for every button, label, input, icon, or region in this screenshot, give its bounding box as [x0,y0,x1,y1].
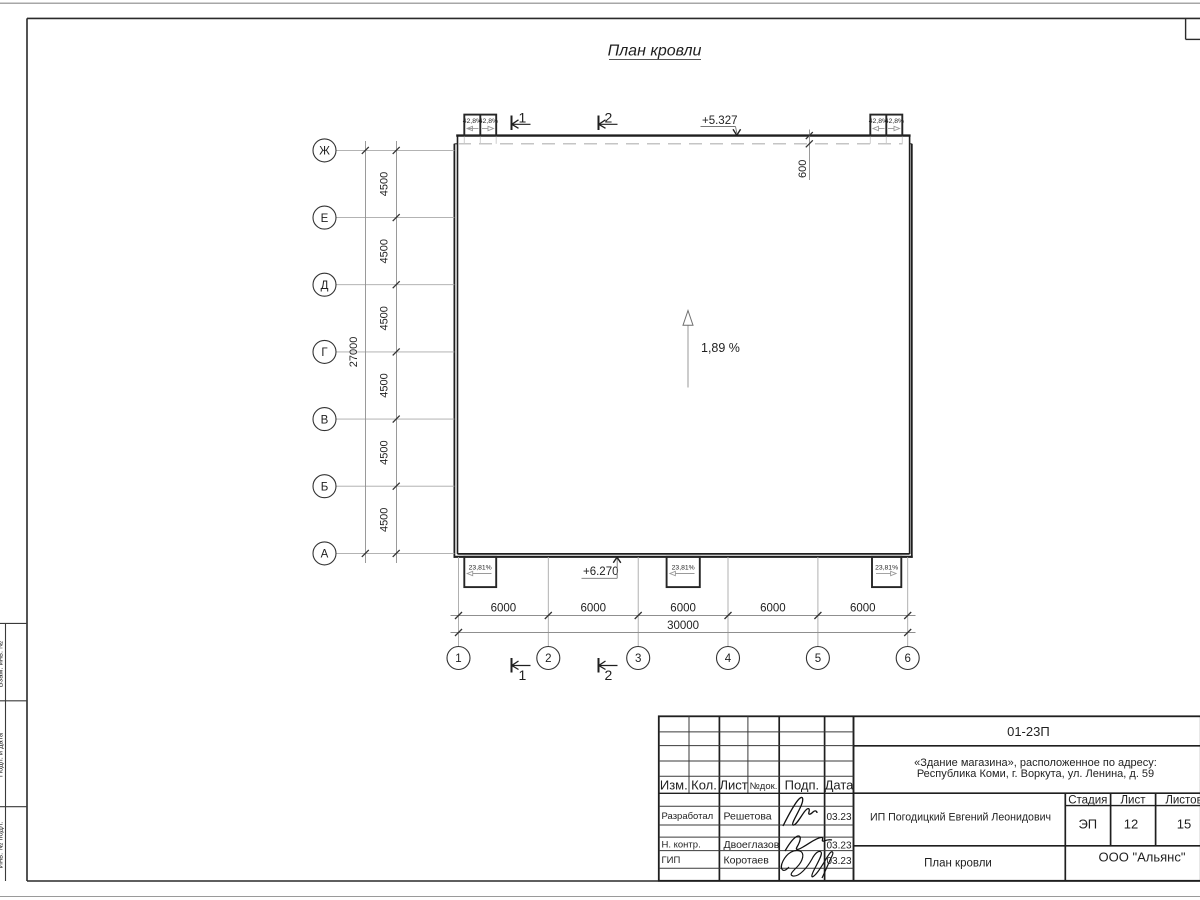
svg-text:Подп. и дата: Подп. и дата [0,732,5,777]
svg-text:Стадия: Стадия [1068,794,1107,806]
svg-text:Инв. № подл.: Инв. № подл. [0,822,5,869]
svg-text:23,81%: 23,81% [875,565,898,572]
svg-text:Д: Д [321,280,329,292]
svg-text:6000: 6000 [670,603,696,615]
svg-text:6000: 6000 [491,603,517,615]
svg-text:Е: Е [321,213,329,225]
svg-text:42,8%: 42,8% [885,118,904,125]
svg-text:№док.: №док. [750,781,778,792]
svg-text:Ж: Ж [319,146,330,158]
svg-text:+5.327: +5.327 [702,115,738,127]
svg-text:ООО "Альянс": ООО "Альянс" [1099,850,1186,865]
svg-text:03.23: 03.23 [826,856,851,867]
svg-text:Разработал: Разработал [662,811,714,822]
svg-text:Решетова: Решетова [724,811,772,823]
svg-text:4500: 4500 [379,239,391,263]
svg-text:1: 1 [519,667,527,683]
svg-text:42,8%: 42,8% [479,118,498,125]
svg-text:«Здание магазина», расположенн: «Здание магазина», расположенное по адре… [914,757,1157,769]
svg-text:Взам. инв. №: Взам. инв. № [0,641,5,687]
svg-text:600: 600 [797,160,809,178]
svg-text:23,81%: 23,81% [672,565,695,572]
svg-text:4500: 4500 [379,508,391,532]
svg-text:План кровли: План кровли [608,43,702,60]
svg-text:Г: Г [321,347,328,359]
svg-text:03.23: 03.23 [826,840,851,851]
svg-text:Двоеглазов: Двоеглазов [724,839,780,851]
svg-text:1: 1 [455,653,461,665]
svg-text:03.23: 03.23 [826,812,851,823]
svg-text:Листов: Листов [1165,794,1200,806]
svg-text:План кровли: План кровли [924,858,992,870]
svg-text:6000: 6000 [581,603,607,615]
svg-text:Лист: Лист [719,777,747,792]
svg-text:Республика Коми, г. Воркута, у: Республика Коми, г. Воркута, ул. Ленина,… [917,768,1154,780]
svg-text:30000: 30000 [667,620,699,632]
svg-text:6: 6 [904,653,910,665]
svg-text:+6.270: +6.270 [583,566,619,578]
svg-text:Подп.: Подп. [785,777,820,792]
svg-text:Коротаев: Коротаев [724,854,770,866]
svg-text:4500: 4500 [379,440,391,464]
svg-text:1: 1 [519,110,527,126]
svg-text:Дата: Дата [825,777,855,792]
svg-text:2: 2 [545,653,551,665]
svg-text:01-23П: 01-23П [1007,724,1050,739]
svg-text:4500: 4500 [379,306,391,330]
svg-text:Лист: Лист [1121,794,1147,806]
svg-text:ИП Погодицкий Евгений Леонидов: ИП Погодицкий Евгений Леонидович [870,811,1051,823]
svg-text:2: 2 [605,110,613,126]
svg-text:ЭП: ЭП [1078,817,1097,832]
svg-text:4500: 4500 [379,172,391,196]
svg-text:3: 3 [635,653,641,665]
svg-text:6000: 6000 [850,603,876,615]
svg-text:15: 15 [1177,817,1191,832]
svg-text:Изм.: Изм. [660,777,688,792]
svg-text:Б: Б [321,481,329,493]
svg-text:23,81%: 23,81% [469,565,492,572]
svg-text:12: 12 [1124,817,1138,832]
svg-text:Кол.: Кол. [691,777,717,792]
svg-text:Н. контр.: Н. контр. [662,839,701,850]
svg-text:ГИП: ГИП [662,855,681,866]
svg-text:4500: 4500 [379,373,391,397]
svg-text:В: В [321,414,329,426]
svg-text:5: 5 [815,653,821,665]
svg-text:А: А [321,549,329,561]
svg-text:6000: 6000 [760,603,786,615]
svg-text:27000: 27000 [348,337,360,368]
svg-text:2: 2 [605,667,613,683]
svg-text:4: 4 [725,653,732,665]
svg-text:1,89 %: 1,89 % [701,341,740,355]
